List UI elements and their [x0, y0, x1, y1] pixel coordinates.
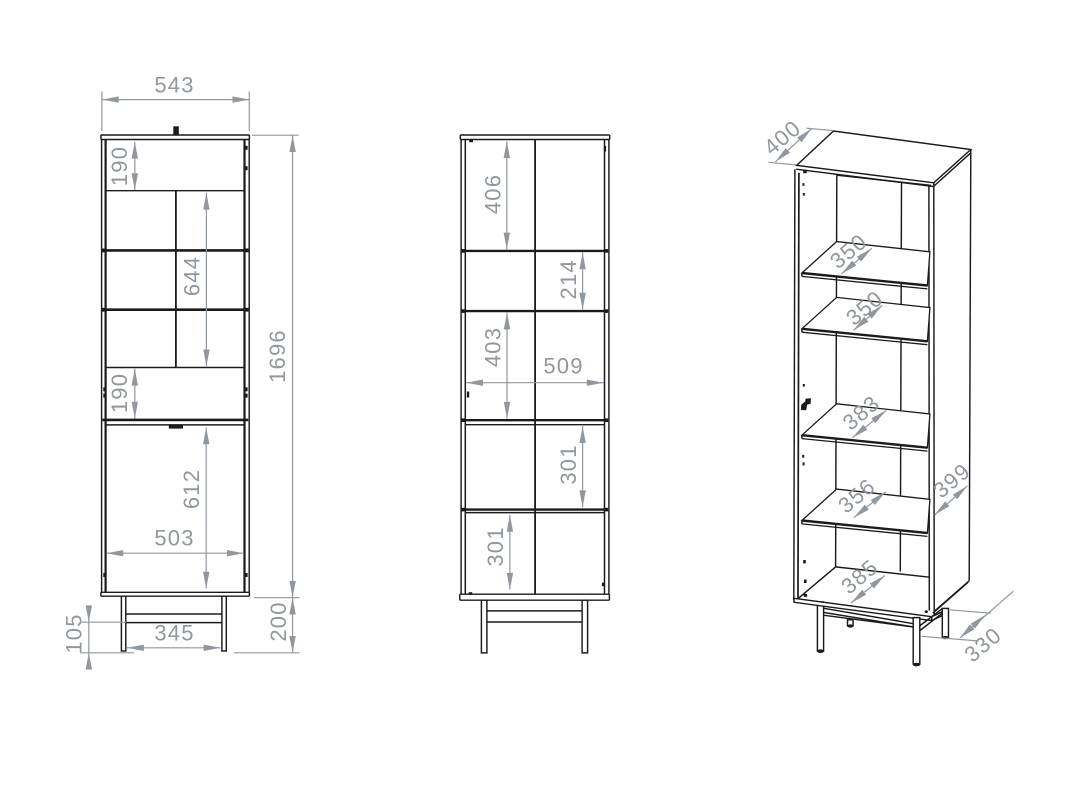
svg-text:503: 503	[154, 526, 194, 551]
svg-text:214: 214	[556, 259, 581, 299]
svg-text:301: 301	[483, 526, 508, 566]
svg-text:403: 403	[481, 327, 506, 367]
svg-text:543: 543	[154, 73, 194, 98]
svg-text:190: 190	[107, 146, 132, 186]
svg-text:301: 301	[556, 444, 581, 484]
svg-text:644: 644	[180, 256, 205, 296]
svg-text:612: 612	[179, 469, 204, 509]
svg-text:345: 345	[154, 620, 194, 645]
svg-text:105: 105	[62, 613, 87, 653]
svg-text:1696: 1696	[265, 329, 290, 383]
svg-text:190: 190	[107, 373, 132, 413]
svg-text:509: 509	[543, 354, 583, 379]
svg-text:200: 200	[266, 601, 291, 641]
svg-text:406: 406	[481, 174, 506, 214]
